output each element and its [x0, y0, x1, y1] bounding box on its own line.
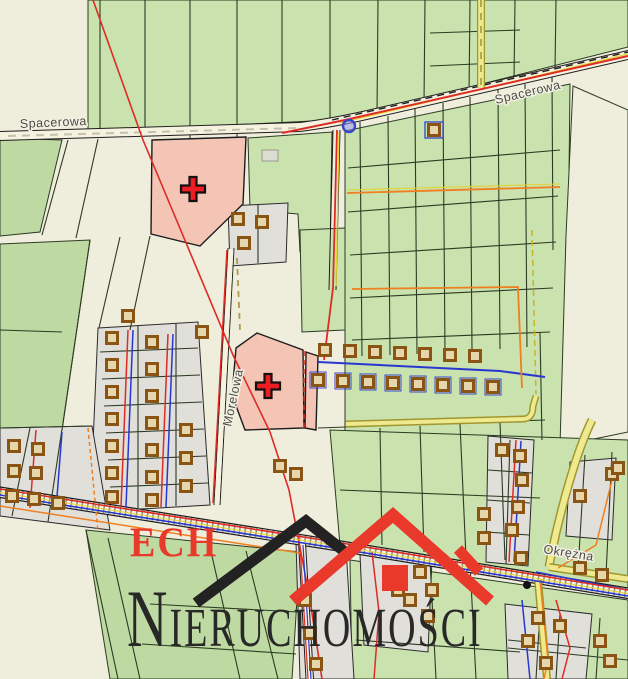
cadastral-map[interactable]: Spacerowa Spacerowa Morelowa Okrężna	[0, 0, 628, 679]
street-label-spacerowa-west: Spacerowa	[20, 114, 88, 131]
map-viewport[interactable]: Spacerowa Spacerowa Morelowa Okrężna ECH…	[0, 0, 628, 679]
junction-node-icon	[523, 581, 531, 589]
junction-node-icon	[343, 120, 355, 132]
